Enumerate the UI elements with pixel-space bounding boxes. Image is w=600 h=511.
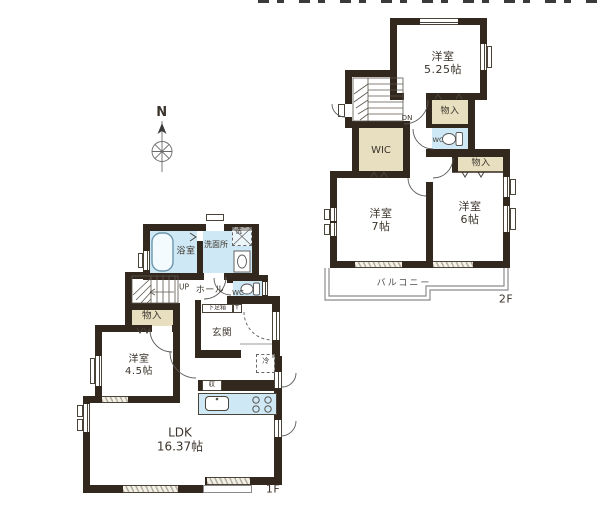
window-frame <box>324 209 330 220</box>
balcony-label: バルコニー <box>377 279 432 290</box>
window-left-7a <box>330 208 337 221</box>
stair-window <box>338 104 345 117</box>
ldk-terrace-door <box>207 477 250 485</box>
plan-linework <box>0 0 600 511</box>
room-label-6: 洋室6帖 <box>459 200 482 226</box>
room-label-45: 洋室4.5帖 <box>125 354 153 378</box>
hall-label: ホール <box>196 286 225 297</box>
shoe-box-label: 下足箱 <box>208 304 226 311</box>
ldk-south-window <box>123 485 178 493</box>
ldk-label: LDK16.37帖 <box>157 426 203 455</box>
entrance-label: 玄関 <box>212 327 232 338</box>
closet1-label: 物入 <box>142 310 162 321</box>
bath-label: 浴室 <box>176 247 195 258</box>
balcony-door-6 <box>433 261 473 268</box>
window-top-525 <box>420 18 458 25</box>
stairs-up-label: UP <box>179 283 189 292</box>
window-frame <box>138 253 143 268</box>
window-frame <box>77 419 83 431</box>
room-label-525: 洋室5.25帖 <box>424 50 462 76</box>
window-right-6b <box>503 206 510 232</box>
wc-window <box>262 282 268 295</box>
ldk-side-door <box>274 420 282 437</box>
window-frame <box>324 224 330 235</box>
window-frame <box>77 405 83 417</box>
shoe-box-t-label: T <box>235 304 239 311</box>
closet-top-label: 物入 <box>440 107 459 118</box>
washer-label: 洗 <box>236 228 243 236</box>
window-frame <box>510 179 516 195</box>
window-left-7b <box>330 223 337 236</box>
room45-window <box>95 356 102 386</box>
wc2-label: WC <box>433 137 444 145</box>
stairs-down-label: DN <box>402 114 413 122</box>
bath-window <box>143 251 150 270</box>
fridge-label: 冷 <box>262 357 270 365</box>
window-right-6a <box>503 177 510 197</box>
window-right-525 <box>480 44 487 70</box>
floor-plan-canvas: N 洋室5.25帖 DN 物入 WC WIC 物入 洋室7帖 洋室6帖 バルコニ… <box>0 0 600 511</box>
entry-door-leaf <box>206 214 224 221</box>
terrace-step <box>203 485 252 493</box>
room-label-7: 洋室7帖 <box>370 207 393 233</box>
cropped-text-strip <box>258 0 600 3</box>
floor2-label: 2F <box>499 292 513 305</box>
ldk-window-a <box>83 404 90 418</box>
window-frame <box>510 208 516 230</box>
floor1-label: 1F <box>266 482 280 495</box>
balcony-door-7 <box>355 261 402 268</box>
wic-label: WIC <box>371 145 391 157</box>
wc1-label: WC <box>232 289 244 297</box>
kitchen-storage-label: 収 <box>209 381 216 389</box>
kitchen-back-door <box>274 372 282 388</box>
window-frame <box>90 358 95 384</box>
compass-north-label: N <box>156 105 167 121</box>
front-door <box>272 312 280 340</box>
washroom-label: 洗面所 <box>204 240 228 250</box>
room45-south-window <box>102 396 128 403</box>
compass-icon <box>152 121 172 172</box>
kitchen-sink-icon <box>205 396 229 411</box>
window-frame <box>487 46 492 68</box>
ldk-window-b <box>83 418 90 432</box>
stairs-1f-icon <box>132 276 178 303</box>
closet-side-label: 物入 <box>471 159 490 170</box>
